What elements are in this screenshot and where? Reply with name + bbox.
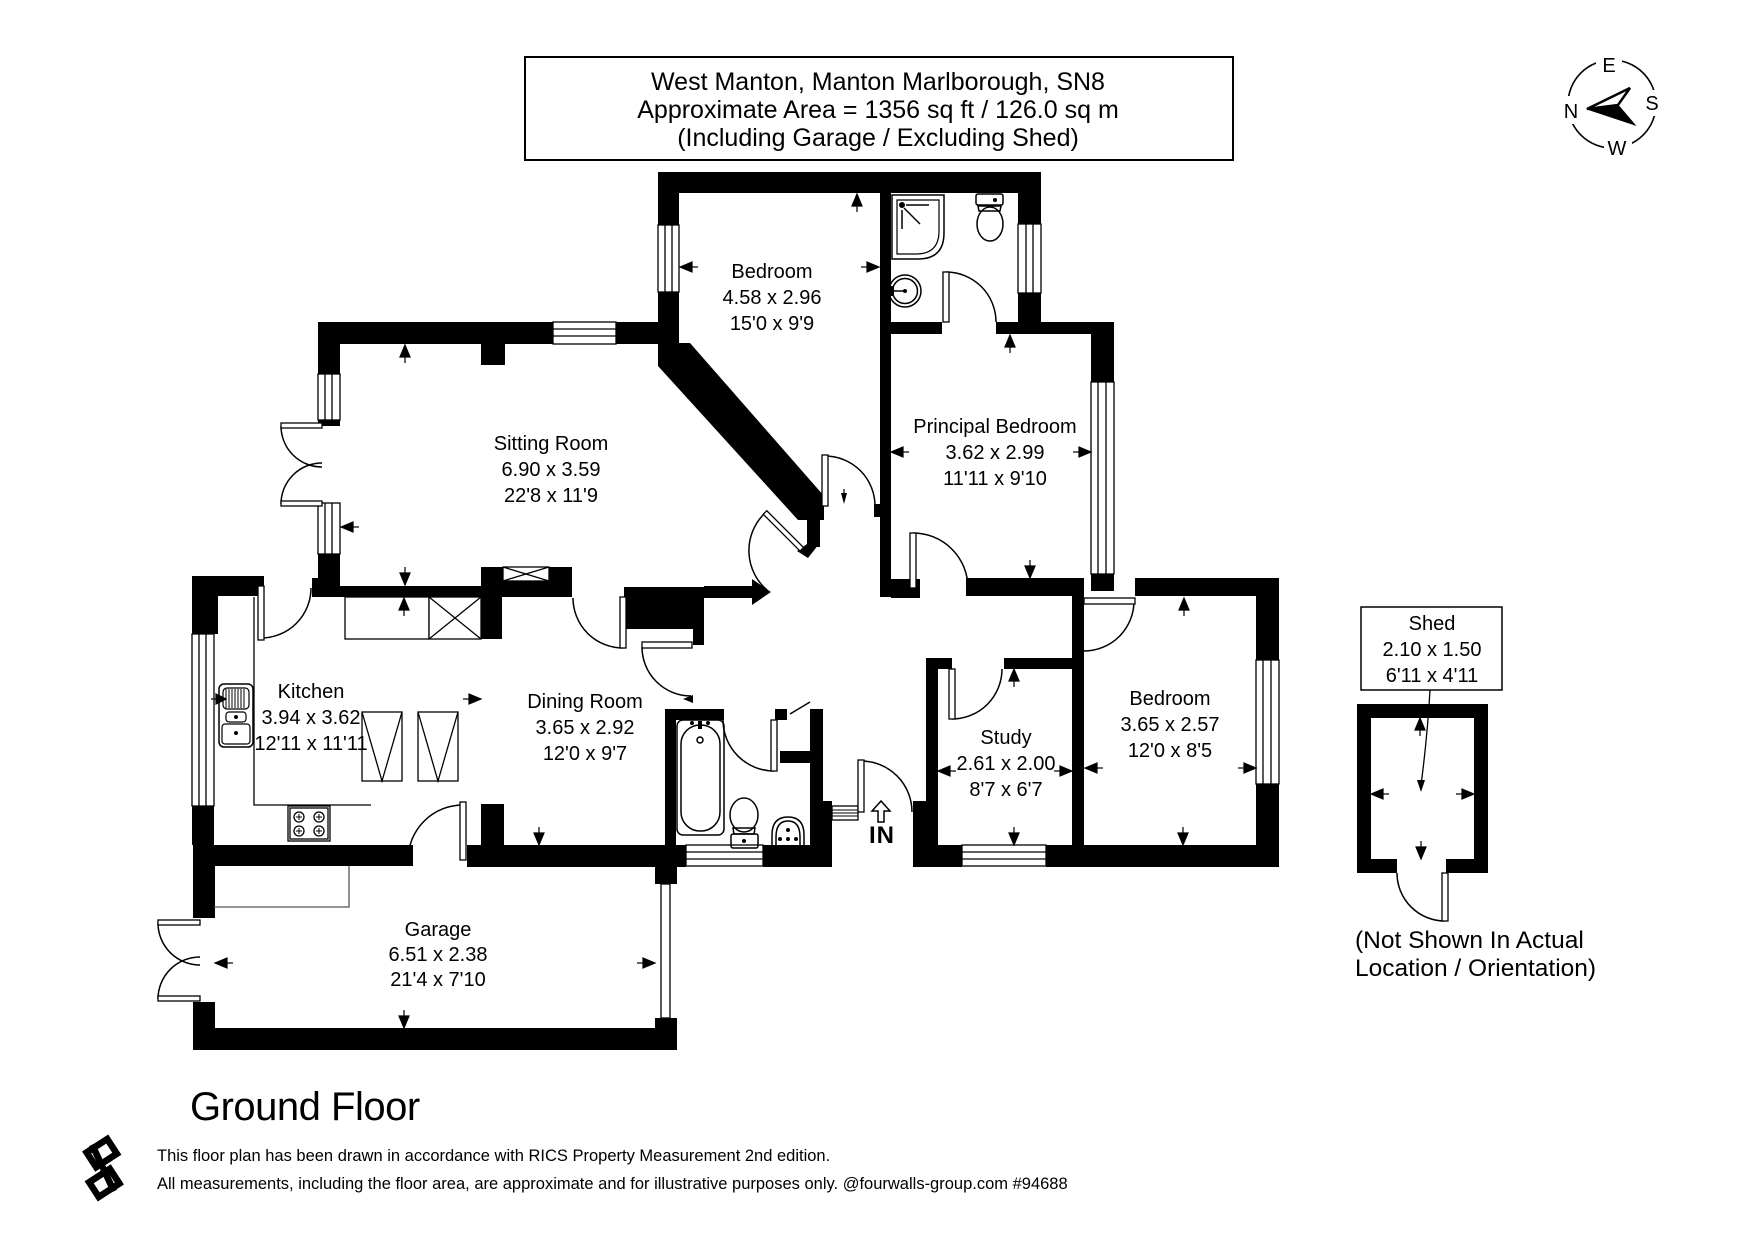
svg-text:Location / Orientation): Location / Orientation) [1355, 955, 1596, 982]
svg-text:6'11 x 4'11: 6'11 x 4'11 [1386, 665, 1479, 687]
svg-text:Approximate Area = 1356 sq ft: Approximate Area = 1356 sq ft / 126.0 sq… [637, 96, 1119, 124]
svg-text:3.65 x 2.92: 3.65 x 2.92 [536, 717, 635, 739]
svg-text:2.10 x 1.50: 2.10 x 1.50 [1383, 639, 1482, 661]
svg-text:6.51 x 2.38: 6.51 x 2.38 [389, 944, 488, 966]
svg-text:(Including Garage / Excluding: (Including Garage / Excluding Shed) [677, 124, 1079, 152]
svg-text:Study: Study [980, 727, 1031, 749]
svg-text:This floor plan has been drawn: This floor plan has been drawn in accord… [157, 1147, 830, 1165]
svg-text:Dining Room: Dining Room [527, 691, 643, 713]
svg-text:All measurements, including th: All measurements, including the floor ar… [157, 1175, 1068, 1193]
svg-text:4.58 x 2.96: 4.58 x 2.96 [723, 287, 822, 309]
svg-text:11'11 x 9'10: 11'11 x 9'10 [943, 468, 1047, 490]
svg-text:21'4 x 7'10: 21'4 x 7'10 [390, 969, 486, 991]
svg-text:Kitchen: Kitchen [278, 681, 345, 703]
svg-text:12'0 x 8'5: 12'0 x 8'5 [1128, 740, 1212, 762]
svg-text:3.62 x 2.99: 3.62 x 2.99 [946, 442, 1045, 464]
svg-text:3.65 x 2.57: 3.65 x 2.57 [1121, 714, 1220, 736]
svg-text:6.90 x 3.59: 6.90 x 3.59 [502, 459, 601, 481]
svg-text:12'11 x 11'11: 12'11 x 11'11 [254, 733, 367, 755]
svg-text:15'0 x 9'9: 15'0 x 9'9 [730, 313, 814, 335]
svg-text:Principal Bedroom: Principal Bedroom [913, 416, 1076, 438]
svg-text:(Not Shown In Actual: (Not Shown In Actual [1355, 927, 1584, 954]
svg-text:3.94 x 3.62: 3.94 x 3.62 [262, 707, 361, 729]
svg-text:12'0 x 9'7: 12'0 x 9'7 [543, 743, 627, 765]
svg-text:E: E [1602, 55, 1615, 77]
svg-text:S: S [1645, 93, 1658, 115]
svg-text:Garage: Garage [405, 919, 472, 941]
svg-text:IN: IN [869, 822, 895, 849]
svg-text:Bedroom: Bedroom [1129, 688, 1210, 710]
svg-text:Sitting Room: Sitting Room [494, 433, 609, 455]
svg-text:West Manton, Manton Marlboroug: West Manton, Manton Marlborough, SN8 [651, 68, 1105, 96]
svg-text:W: W [1608, 138, 1627, 160]
svg-text:Bedroom: Bedroom [731, 261, 812, 283]
svg-text:Ground Floor: Ground Floor [190, 1085, 420, 1129]
svg-text:Shed: Shed [1409, 613, 1456, 635]
svg-text:N: N [1564, 101, 1578, 123]
svg-text:22'8 x 11'9: 22'8 x 11'9 [504, 485, 598, 507]
svg-text:8'7 x 6'7: 8'7 x 6'7 [969, 779, 1042, 801]
svg-text:2.61 x 2.00: 2.61 x 2.00 [957, 753, 1056, 775]
